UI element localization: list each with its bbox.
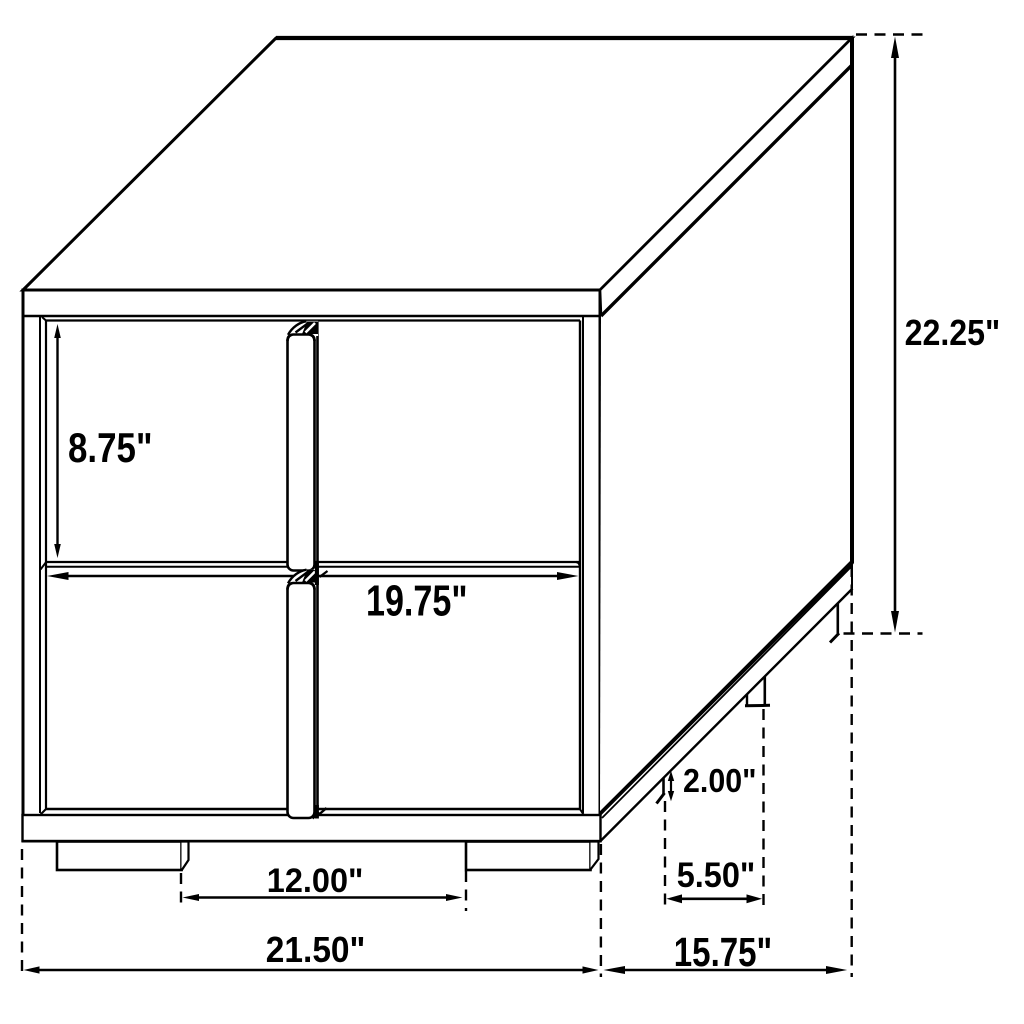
svg-text:19.75": 19.75"	[366, 576, 468, 625]
svg-text:21.50": 21.50"	[266, 929, 366, 970]
svg-text:15.75": 15.75"	[674, 929, 772, 975]
svg-text:12.00": 12.00"	[267, 862, 364, 900]
svg-text:8.75": 8.75"	[68, 424, 153, 471]
svg-text:5.50": 5.50"	[677, 856, 756, 895]
svg-text:2.00": 2.00"	[683, 763, 757, 800]
svg-text:22.25": 22.25"	[905, 312, 1001, 353]
